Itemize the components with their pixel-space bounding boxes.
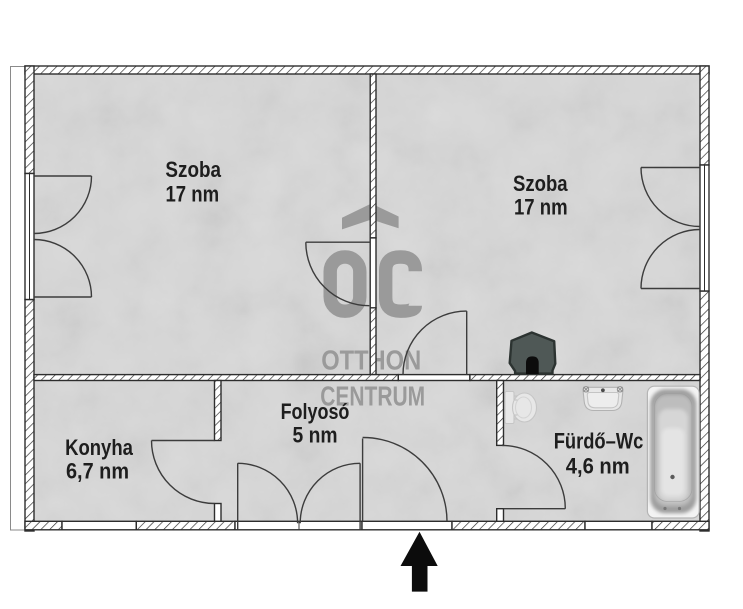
svg-text:Konyha: Konyha <box>65 435 133 460</box>
svg-text:5 nm: 5 nm <box>292 423 337 448</box>
svg-text:17 nm: 17 nm <box>514 195 568 220</box>
svg-text:17 nm: 17 nm <box>165 182 219 207</box>
svg-text:4,6 nm: 4,6 nm <box>566 453 630 478</box>
svg-text:6,7 nm: 6,7 nm <box>66 459 129 484</box>
svg-text:Szoba: Szoba <box>165 157 221 182</box>
svg-text:Folyosó: Folyosó <box>281 400 350 424</box>
svg-text:Szoba: Szoba <box>513 171 568 196</box>
svg-text:Fürdő–Wc: Fürdő–Wc <box>554 429 644 454</box>
